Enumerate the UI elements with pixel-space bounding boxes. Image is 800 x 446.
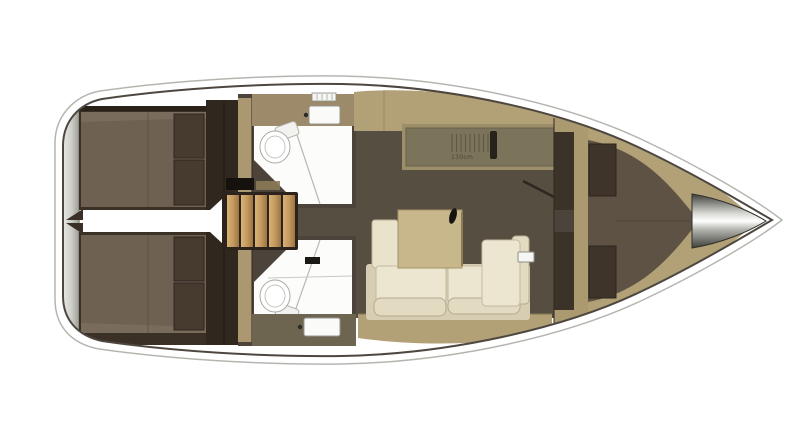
- pillow-icon: [589, 144, 616, 196]
- fwd-locker: [554, 232, 574, 310]
- fwd-cabin-doorway: [554, 210, 574, 232]
- fixture-icon: [305, 257, 320, 264]
- aft-cabin-starboard: [79, 232, 242, 345]
- galley-dimension-label: 130cm: [451, 154, 473, 161]
- sink: [304, 318, 340, 336]
- faucet-icon: [304, 113, 308, 117]
- stair-tread: [227, 195, 239, 247]
- pillow-icon: [589, 246, 616, 298]
- galley-worktop: [406, 128, 572, 166]
- pillow-icon: [174, 160, 204, 205]
- sink: [309, 106, 340, 124]
- head-door-wall: [238, 98, 252, 208]
- step-light: [518, 252, 534, 262]
- sofa-left-seat: [372, 220, 398, 268]
- faucet-icon: [298, 325, 302, 329]
- hatch-icon: [312, 93, 336, 101]
- stair-tread: [241, 195, 253, 247]
- pillow-icon: [174, 283, 204, 330]
- fwd-locker: [554, 132, 574, 210]
- pillow-icon: [174, 237, 204, 281]
- instrument-box: [226, 178, 254, 190]
- yacht-floor-plan: 130cm: [0, 0, 800, 446]
- sofa-chaise: [482, 240, 520, 306]
- head-port: [238, 93, 356, 208]
- pillow-icon: [174, 114, 204, 158]
- galley-fitting: [490, 131, 497, 159]
- head-door-wall: [238, 236, 252, 342]
- stair-tread: [255, 195, 267, 247]
- stair-tread: [269, 195, 281, 247]
- sofa-cushion: [376, 266, 446, 302]
- sofa-bolster: [374, 298, 446, 316]
- head-starboard: [238, 236, 356, 346]
- floor-plan-canvas: 130cm: [0, 0, 800, 446]
- stair-tread: [283, 195, 295, 247]
- aft-cabin-port: [79, 100, 242, 210]
